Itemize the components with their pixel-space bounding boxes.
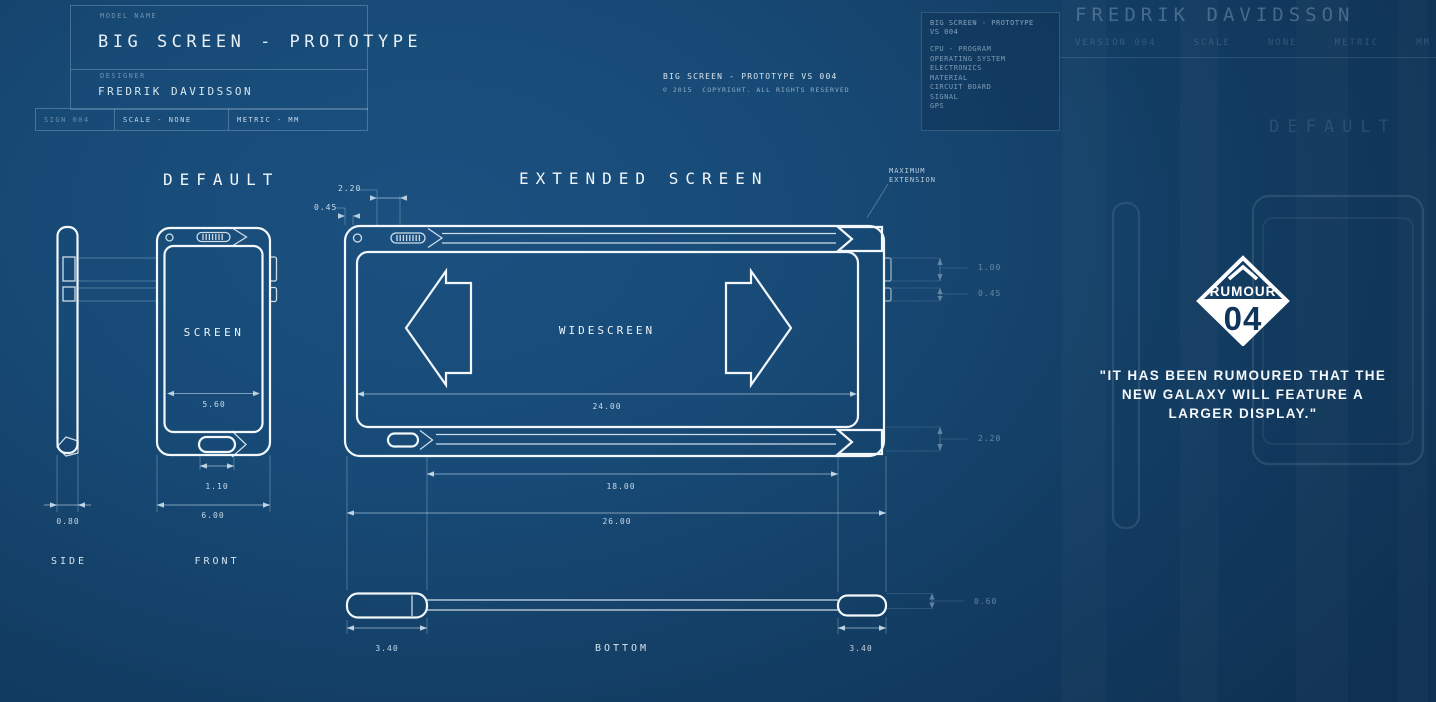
default-heading: DEFAULT xyxy=(163,170,279,189)
widescreen-label: WIDESCREEN xyxy=(559,324,655,337)
front-speaker xyxy=(197,233,230,242)
spec-panel-title-1: BIG SCREEN - PROTOTYPE xyxy=(930,19,1034,27)
dim-end-left: 3.40 xyxy=(375,644,398,653)
right-callouts xyxy=(886,258,968,609)
spec-item-os: OPERATING SYSTEM xyxy=(930,55,1005,63)
bottom-view-label: BOTTOM xyxy=(595,643,649,654)
blueprint-stage: MODEL NAME BIG SCREEN - PROTOTYPE DESIGN… xyxy=(0,0,1436,702)
extended-camera xyxy=(354,234,362,242)
front-camera xyxy=(166,234,173,241)
extended-view-drawing xyxy=(335,184,891,456)
title-block-divider xyxy=(71,69,367,70)
quote-line-2: NEW GALAXY WILL FEATURE A xyxy=(1048,385,1436,404)
dim-end-right: 3.40 xyxy=(849,644,872,653)
front-speaker-chevron xyxy=(233,229,247,246)
extended-home-chevron xyxy=(420,431,433,450)
side-view-label: SIDE xyxy=(51,556,87,567)
spec-item-electronics: ELECTRONICS xyxy=(930,64,982,72)
designer-label: DESIGNER xyxy=(100,72,146,80)
sign-cell: SIGN 004 xyxy=(36,109,114,130)
dim-bar: 0.60 xyxy=(974,597,997,606)
dim-total: 26.00 xyxy=(602,517,631,526)
extended-speaker-chevron xyxy=(428,229,442,248)
extended-screen-heading: EXTENDED SCREEN xyxy=(519,169,769,188)
scale-cell: SCALE - NONE xyxy=(114,109,228,130)
spec-item-circuit-board: CIRCUIT BOARD xyxy=(930,83,991,91)
side-view-drawing xyxy=(44,227,157,512)
extension-notch-bottom xyxy=(838,430,882,454)
center-header-title: BIG SCREEN - PROTOTYPE VS 004 xyxy=(663,72,837,81)
spec-item-gps: GPS xyxy=(930,102,944,110)
metric-cell: METRIC - MM xyxy=(228,109,367,130)
extended-home-button xyxy=(388,434,418,447)
dim-home-width: 1.10 xyxy=(205,482,228,491)
dim-screen-width: 5.60 xyxy=(202,400,225,409)
rumour-badge: RUMOUR 04 xyxy=(1192,250,1294,346)
dim-button-1: 1.00 xyxy=(978,263,1001,272)
badge-label: RUMOUR xyxy=(1210,284,1277,299)
spec-item-cpu: CPU - PROGRAM xyxy=(930,45,991,53)
spec-item-material: MATERIAL xyxy=(930,74,968,82)
ghost-header-rule xyxy=(1060,57,1436,58)
ghost-designer-name: FREDRIK DAVIDSSON xyxy=(1075,4,1354,26)
quote-line-1: "IT HAS BEEN RUMOURED THAT THE xyxy=(1048,366,1436,385)
spec-item-signal: SIGNAL xyxy=(930,93,958,101)
dim-side-depth: 0.80 xyxy=(56,517,79,526)
quote-line-3: LARGER DISPLAY." xyxy=(1048,404,1436,423)
center-header-copyright: © 2015 COPYRIGHT. ALL RIGHTS RESERVED xyxy=(663,86,850,94)
dim-extended-screen: 24.00 xyxy=(592,402,621,411)
front-view-label: FRONT xyxy=(194,556,239,567)
front-view-drawing xyxy=(157,228,277,512)
ghost-phone-drawings xyxy=(1113,196,1423,528)
side-button-1 xyxy=(63,257,75,281)
max-extension-label-2: EXTENSION xyxy=(889,176,936,184)
spec-panel-title-2: VS 004 xyxy=(930,28,958,36)
badge-number: 04 xyxy=(1224,300,1263,337)
dim-phone-width: 6.00 xyxy=(201,511,224,520)
screen-label: SCREEN xyxy=(184,326,245,339)
dim-bezel: 2.20 xyxy=(978,434,1001,443)
side-button-2 xyxy=(63,287,75,301)
expand-arrow-left xyxy=(406,271,471,385)
title-block-meta-row: SIGN 004 SCALE - NONE METRIC - MM xyxy=(35,108,368,131)
front-home-button xyxy=(199,437,235,452)
ghost-meta-row: VERSION 004 SCALE NONE METRIC MM xyxy=(1075,38,1431,48)
dim-camera: 0.45 xyxy=(314,203,337,212)
rumour-quote: "IT HAS BEEN RUMOURED THAT THE NEW GALAX… xyxy=(1048,366,1436,423)
dim-track: 18.00 xyxy=(606,482,635,491)
expand-arrow-right xyxy=(726,271,791,385)
model-name-label: MODEL NAME xyxy=(100,12,157,20)
designer-name: FREDRIK DAVIDSSON xyxy=(98,85,253,98)
ghost-default-heading: DEFAULT xyxy=(1269,117,1397,137)
model-name: BIG SCREEN - PROTOTYPE xyxy=(98,32,422,52)
max-extension-label-1: MAXIMUM xyxy=(889,167,926,175)
dim-button-2: 0.45 xyxy=(978,289,1001,298)
extension-notch-top xyxy=(838,227,882,251)
dim-speaker: 2.20 xyxy=(338,184,361,193)
